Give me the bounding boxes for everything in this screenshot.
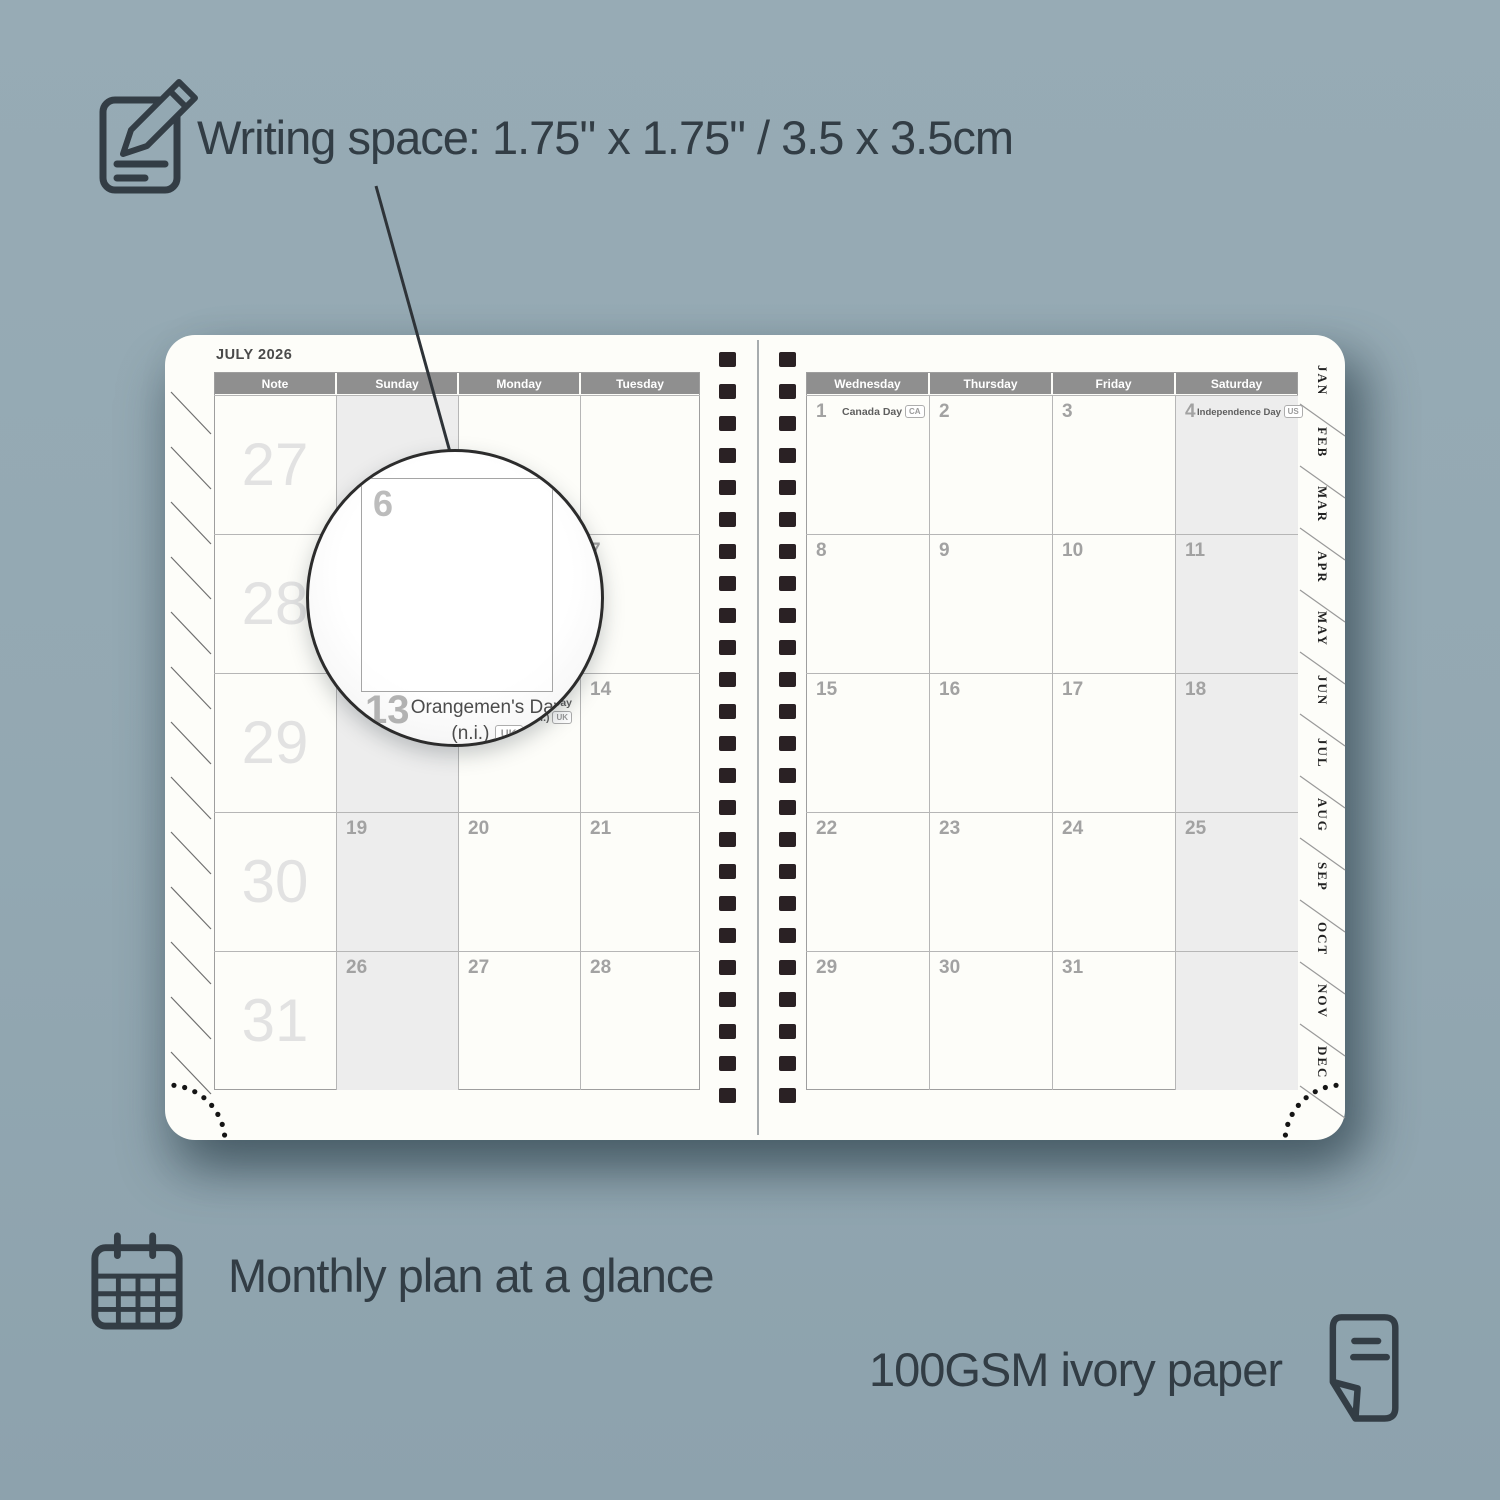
binding-hole — [779, 544, 796, 559]
grid-line — [806, 395, 1298, 396]
day-number: 19 — [346, 819, 367, 838]
binding-hole — [779, 576, 796, 591]
binding-hole — [779, 736, 796, 751]
binding-hole — [779, 800, 796, 815]
paper-sheet-icon — [1322, 1313, 1404, 1425]
binding-hole — [719, 672, 736, 687]
magnifier-circle: 6 13 Orangemen's Day (n.i.) UK — [306, 449, 604, 747]
binding-hole — [779, 704, 796, 719]
day-number: 14 — [590, 680, 611, 699]
binding-hole — [719, 896, 736, 911]
binding-hole — [719, 640, 736, 655]
binding-hole — [719, 992, 736, 1007]
month-tab-nov: NOV — [1300, 970, 1344, 1032]
binding-hole — [719, 448, 736, 463]
month-tab-aug: AUG — [1300, 784, 1344, 846]
day-number: 30 — [939, 958, 960, 977]
binding-hole — [719, 384, 736, 399]
day-number: 15 — [816, 680, 837, 699]
binding-hole — [779, 1088, 796, 1103]
week-number: 31 — [214, 951, 336, 1090]
holiday-country-badge: CA — [905, 405, 925, 418]
month-tab-feb: FEB — [1300, 412, 1344, 474]
day-number: 20 — [468, 819, 489, 838]
day-number: 28 — [590, 958, 611, 977]
binding-hole — [779, 640, 796, 655]
month-tab-apr: APR — [1300, 536, 1344, 598]
binding-hole — [719, 416, 736, 431]
day-number: 25 — [1185, 819, 1206, 838]
binding-hole — [779, 1056, 796, 1071]
binding-hole — [779, 832, 796, 847]
binding-hole — [719, 480, 736, 495]
binding-hole — [779, 416, 796, 431]
binding-hole — [719, 608, 736, 623]
binding-hole — [719, 928, 736, 943]
binding-hole — [719, 800, 736, 815]
day-header: Sunday — [337, 373, 457, 394]
month-tab-oct: OCT — [1300, 908, 1344, 970]
day-number: 31 — [1062, 958, 1083, 977]
month-tab-may: MAY — [1300, 598, 1344, 660]
binding-hole — [719, 544, 736, 559]
grid-line — [806, 951, 1298, 952]
binding-hole — [719, 736, 736, 751]
binding-hole — [779, 512, 796, 527]
binding-hole — [779, 896, 796, 911]
grid-line — [806, 673, 1298, 674]
grid-line — [580, 395, 581, 1090]
binding-hole — [719, 512, 736, 527]
binding-hole — [779, 928, 796, 943]
grid-line — [806, 534, 1298, 535]
binding-hole — [779, 480, 796, 495]
day-number: 17 — [1062, 680, 1083, 699]
day-number: 22 — [816, 819, 837, 838]
binding-hole — [779, 960, 796, 975]
day-number: 27 — [468, 958, 489, 977]
shaded-column — [1175, 395, 1298, 1090]
day-header: Note — [215, 373, 335, 394]
binding-hole — [779, 672, 796, 687]
day-number: 16 — [939, 680, 960, 699]
holiday-country-badge: UK — [495, 725, 523, 743]
day-number: 4 — [1185, 402, 1196, 421]
grid-line — [336, 395, 337, 1090]
week-number: 30 — [214, 812, 336, 951]
day-header: Saturday — [1176, 373, 1297, 394]
month-tab-jul: JUL — [1300, 722, 1344, 784]
day-header: Tuesday — [581, 373, 699, 394]
month-tab-jun: JUN — [1300, 660, 1344, 722]
day-header: Friday — [1053, 373, 1174, 394]
day-number: 3 — [1062, 402, 1073, 421]
binding-hole — [779, 1024, 796, 1039]
holiday-label: Independence Day US — [1197, 405, 1303, 420]
magnified-day-number: 6 — [373, 486, 393, 522]
day-number: 29 — [816, 958, 837, 977]
binding-hole — [719, 576, 736, 591]
week-number: 27 — [214, 395, 336, 534]
month-tab-sep: SEP — [1300, 846, 1344, 908]
magnified-holiday: Orangemen's Day (n.i.) UK — [395, 695, 579, 746]
grid-line — [929, 395, 930, 1090]
day-number: 10 — [1062, 541, 1083, 560]
magnified-holiday-name: Orangemen's Day — [395, 695, 579, 721]
writing-space-caption: Writing space: 1.75" x 1.75" / 3.5 x 3.5… — [197, 110, 1013, 165]
binding-hole — [719, 864, 736, 879]
month-tab-jan: JAN — [1300, 350, 1344, 412]
binding-hole — [779, 384, 796, 399]
binding-hole — [779, 992, 796, 1007]
day-header: Monday — [459, 373, 579, 394]
binding-hole — [719, 704, 736, 719]
day-number: 21 — [590, 819, 611, 838]
monthly-plan-caption: Monthly plan at a glance — [228, 1248, 714, 1303]
month-tab-mar: MAR — [1300, 474, 1344, 536]
day-number: 23 — [939, 819, 960, 838]
grid-line — [806, 812, 1298, 813]
day-number: 8 — [816, 541, 827, 560]
binding-hole — [719, 1024, 736, 1039]
binding-hole — [779, 352, 796, 367]
magnified-holiday-region: (n.i.) UK — [395, 721, 579, 747]
binding-hole — [719, 832, 736, 847]
day-number: 18 — [1185, 680, 1206, 699]
grid-line — [1175, 395, 1176, 1090]
day-number: 24 — [1062, 819, 1083, 838]
month-tab-dec: DEC — [1300, 1032, 1344, 1094]
binding-hole — [719, 352, 736, 367]
binding-hole — [719, 768, 736, 783]
day-number: 26 — [346, 958, 367, 977]
day-header: Thursday — [930, 373, 1051, 394]
holiday-label: Canada Day CA — [842, 405, 925, 420]
month-title: JULY 2026 — [216, 347, 292, 363]
binding-hole — [719, 960, 736, 975]
binding-hole — [719, 1056, 736, 1071]
binding-hole — [779, 448, 796, 463]
binding-hole — [779, 768, 796, 783]
binding-hole — [779, 608, 796, 623]
binding-hole — [779, 864, 796, 879]
day-number: 11 — [1185, 541, 1205, 560]
grid-line — [1052, 395, 1053, 1090]
day-header: Wednesday — [807, 373, 928, 394]
binding-hole — [719, 1088, 736, 1103]
day-number: 2 — [939, 402, 950, 421]
week-number: 29 — [214, 673, 336, 812]
notepad-pencil-icon — [95, 76, 199, 198]
day-number: 9 — [939, 541, 950, 560]
page-seam — [757, 340, 759, 1135]
day-number: 1 — [816, 402, 827, 421]
product-infographic: Writing space: 1.75" x 1.75" / 3.5 x 3.5… — [0, 0, 1500, 1500]
paper-caption: 100GSM ivory paper — [869, 1342, 1282, 1397]
calendar-grid-icon — [88, 1232, 186, 1332]
